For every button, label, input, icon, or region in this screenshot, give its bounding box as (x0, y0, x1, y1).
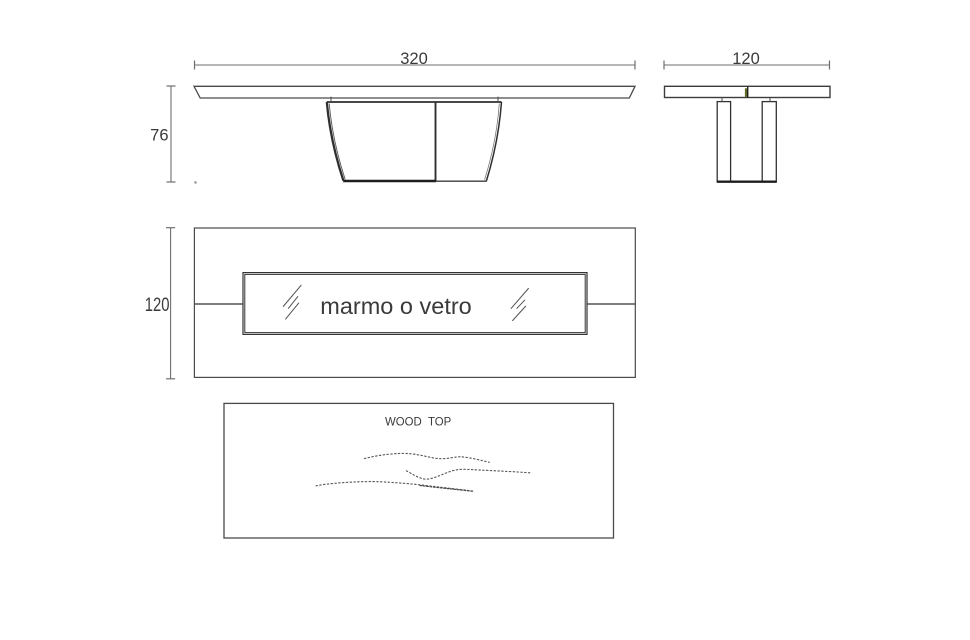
svg-text:marmo o vetro: marmo o vetro (320, 293, 472, 319)
svg-text:76: 76 (150, 127, 168, 145)
svg-text:WOOD TOP: WOOD TOP (385, 414, 451, 428)
svg-text:120: 120 (145, 293, 170, 316)
svg-text:120: 120 (732, 50, 760, 68)
svg-text:320: 320 (400, 50, 428, 68)
